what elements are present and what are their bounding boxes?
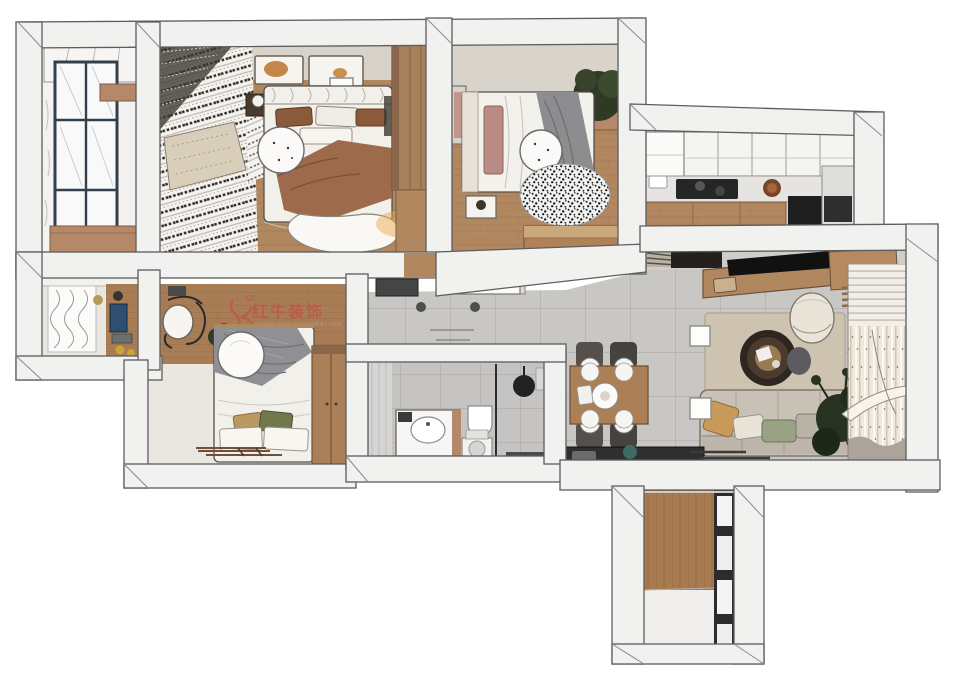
svg-text:红牛装饰: 红牛装饰 — [252, 302, 324, 321]
